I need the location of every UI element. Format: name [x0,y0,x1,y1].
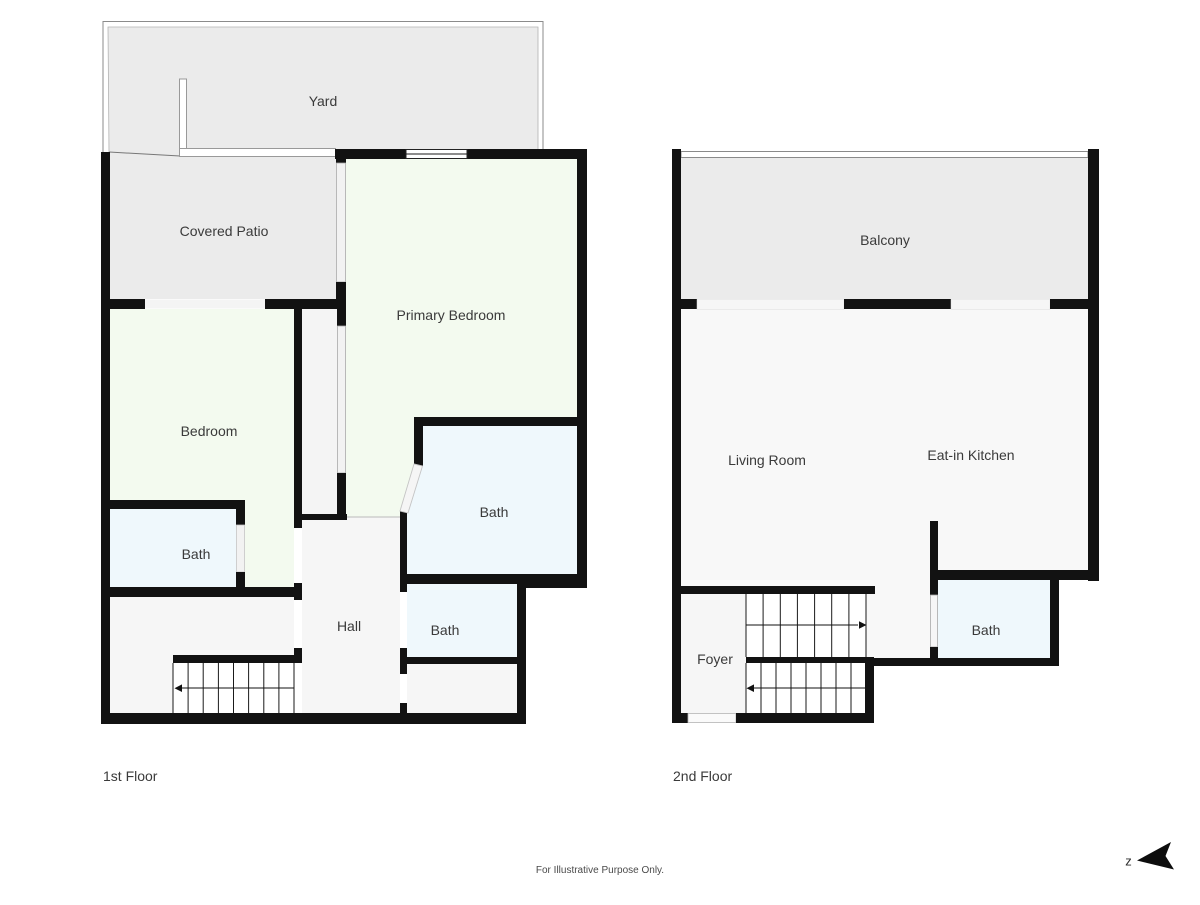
svg-text:Bath: Bath [972,622,1001,638]
svg-text:Bath: Bath [431,622,460,638]
svg-text:Covered Patio: Covered Patio [180,223,269,239]
svg-text:Foyer: Foyer [697,651,733,667]
svg-text:1st Floor: 1st Floor [103,768,158,784]
svg-text:2nd Floor: 2nd Floor [673,768,732,784]
svg-text:Bedroom: Bedroom [181,423,238,439]
svg-text:Primary Bedroom: Primary Bedroom [397,307,506,323]
svg-text:Hall: Hall [337,618,361,634]
svg-text:For Illustrative Purpose Only.: For Illustrative Purpose Only. [536,865,664,876]
svg-text:z: z [1125,854,1132,869]
svg-text:Eat-in Kitchen: Eat-in Kitchen [927,447,1014,463]
svg-text:Living Room: Living Room [728,452,806,468]
svg-text:Bath: Bath [182,546,211,562]
svg-text:Yard: Yard [309,93,338,109]
svg-text:Bath: Bath [480,504,509,520]
svg-text:Balcony: Balcony [860,232,910,248]
